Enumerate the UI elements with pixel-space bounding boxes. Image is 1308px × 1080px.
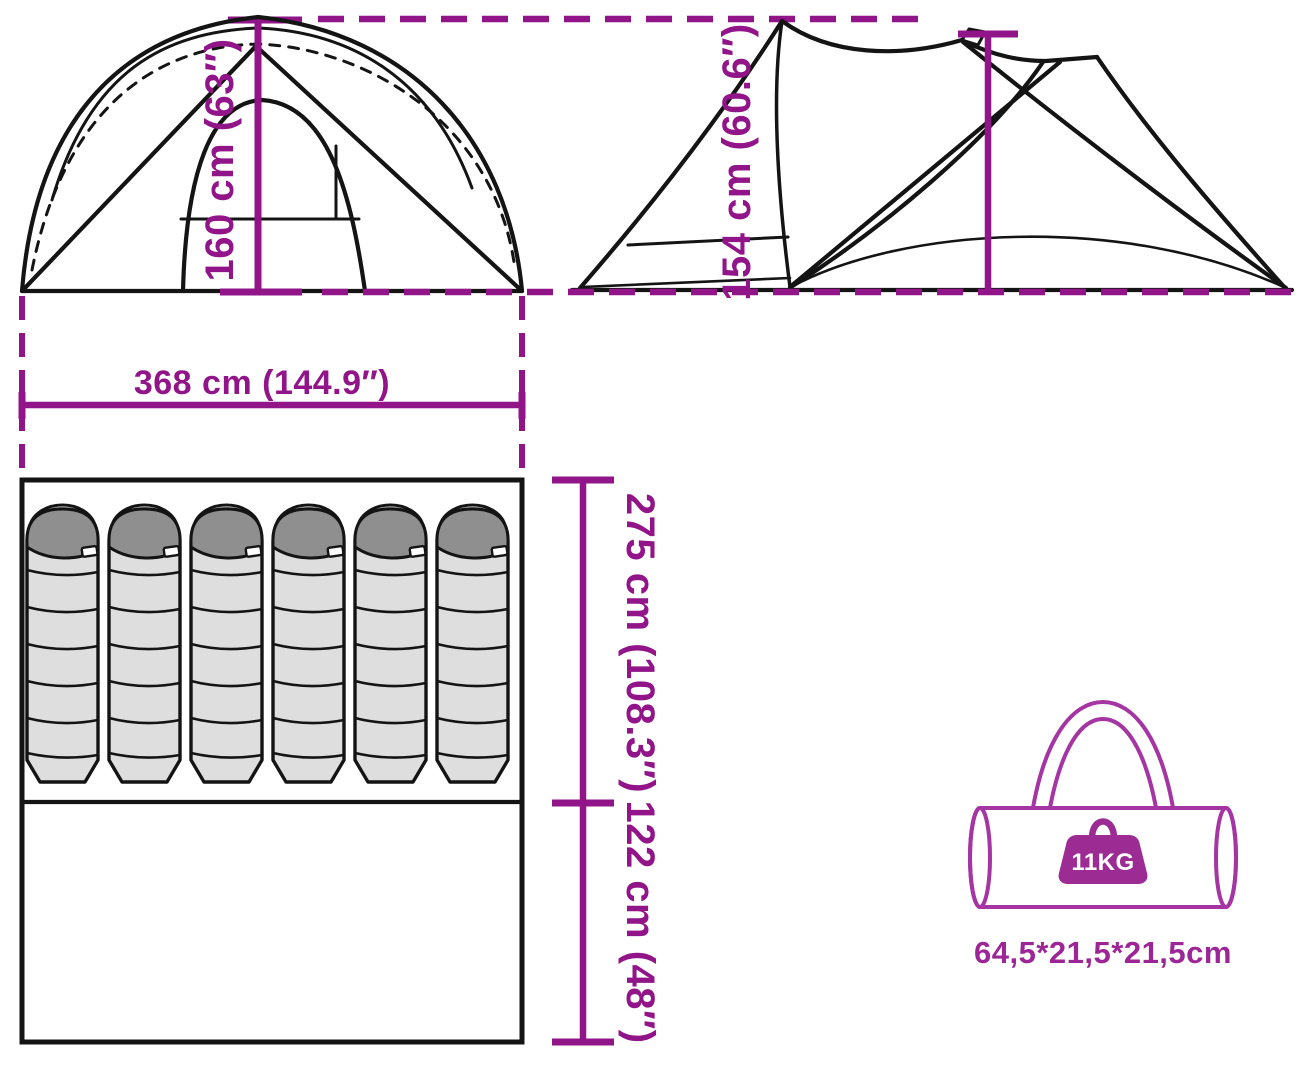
width-dimension: 368 cm (144.9″) — [22, 296, 522, 478]
porch-length-label: 122 cm (48″) — [618, 800, 662, 1043]
front-height-dimension: 160 cm (63″) — [198, 20, 302, 292]
sleeping-bag-icon — [273, 505, 344, 782]
tent-dimension-diagram: 160 cm (63″) 154 cm (60.6″) 368 cm (144.… — [0, 0, 1308, 1080]
carry-bag-icon: 11KG 64,5*21,5*21,5cm — [970, 702, 1236, 970]
sleeping-area-length-label: 275 cm (108.3″) — [618, 493, 662, 793]
side-view-drawing — [572, 21, 1292, 290]
side-height-label: 154 cm (60.6″) — [715, 23, 759, 300]
sleeping-bag-icon — [27, 505, 98, 782]
weight-label: 11KG — [1071, 849, 1134, 876]
width-label: 368 cm (144.9″) — [134, 364, 390, 402]
front-height-label: 160 cm (63″) — [198, 38, 242, 281]
side-height-dimension: 154 cm (60.6″) — [715, 23, 1018, 300]
sleeping-bag-icon — [191, 505, 262, 782]
diagram-canvas: 160 cm (63″) 154 cm (60.6″) 368 cm (144.… — [0, 0, 1308, 1080]
carry-bag-size-label: 64,5*21,5*21,5cm — [974, 935, 1232, 970]
floor-length-dimension: 275 cm (108.3″) 122 cm (48″) — [552, 480, 662, 1044]
front-view-drawing — [22, 17, 522, 291]
floor-plan-drawing — [22, 480, 522, 1042]
sleeping-bag-icon — [437, 505, 508, 782]
height-reference-lines — [228, 19, 930, 20]
sleeping-bag-icon — [355, 505, 426, 782]
sleeping-bag-icon — [109, 505, 180, 782]
